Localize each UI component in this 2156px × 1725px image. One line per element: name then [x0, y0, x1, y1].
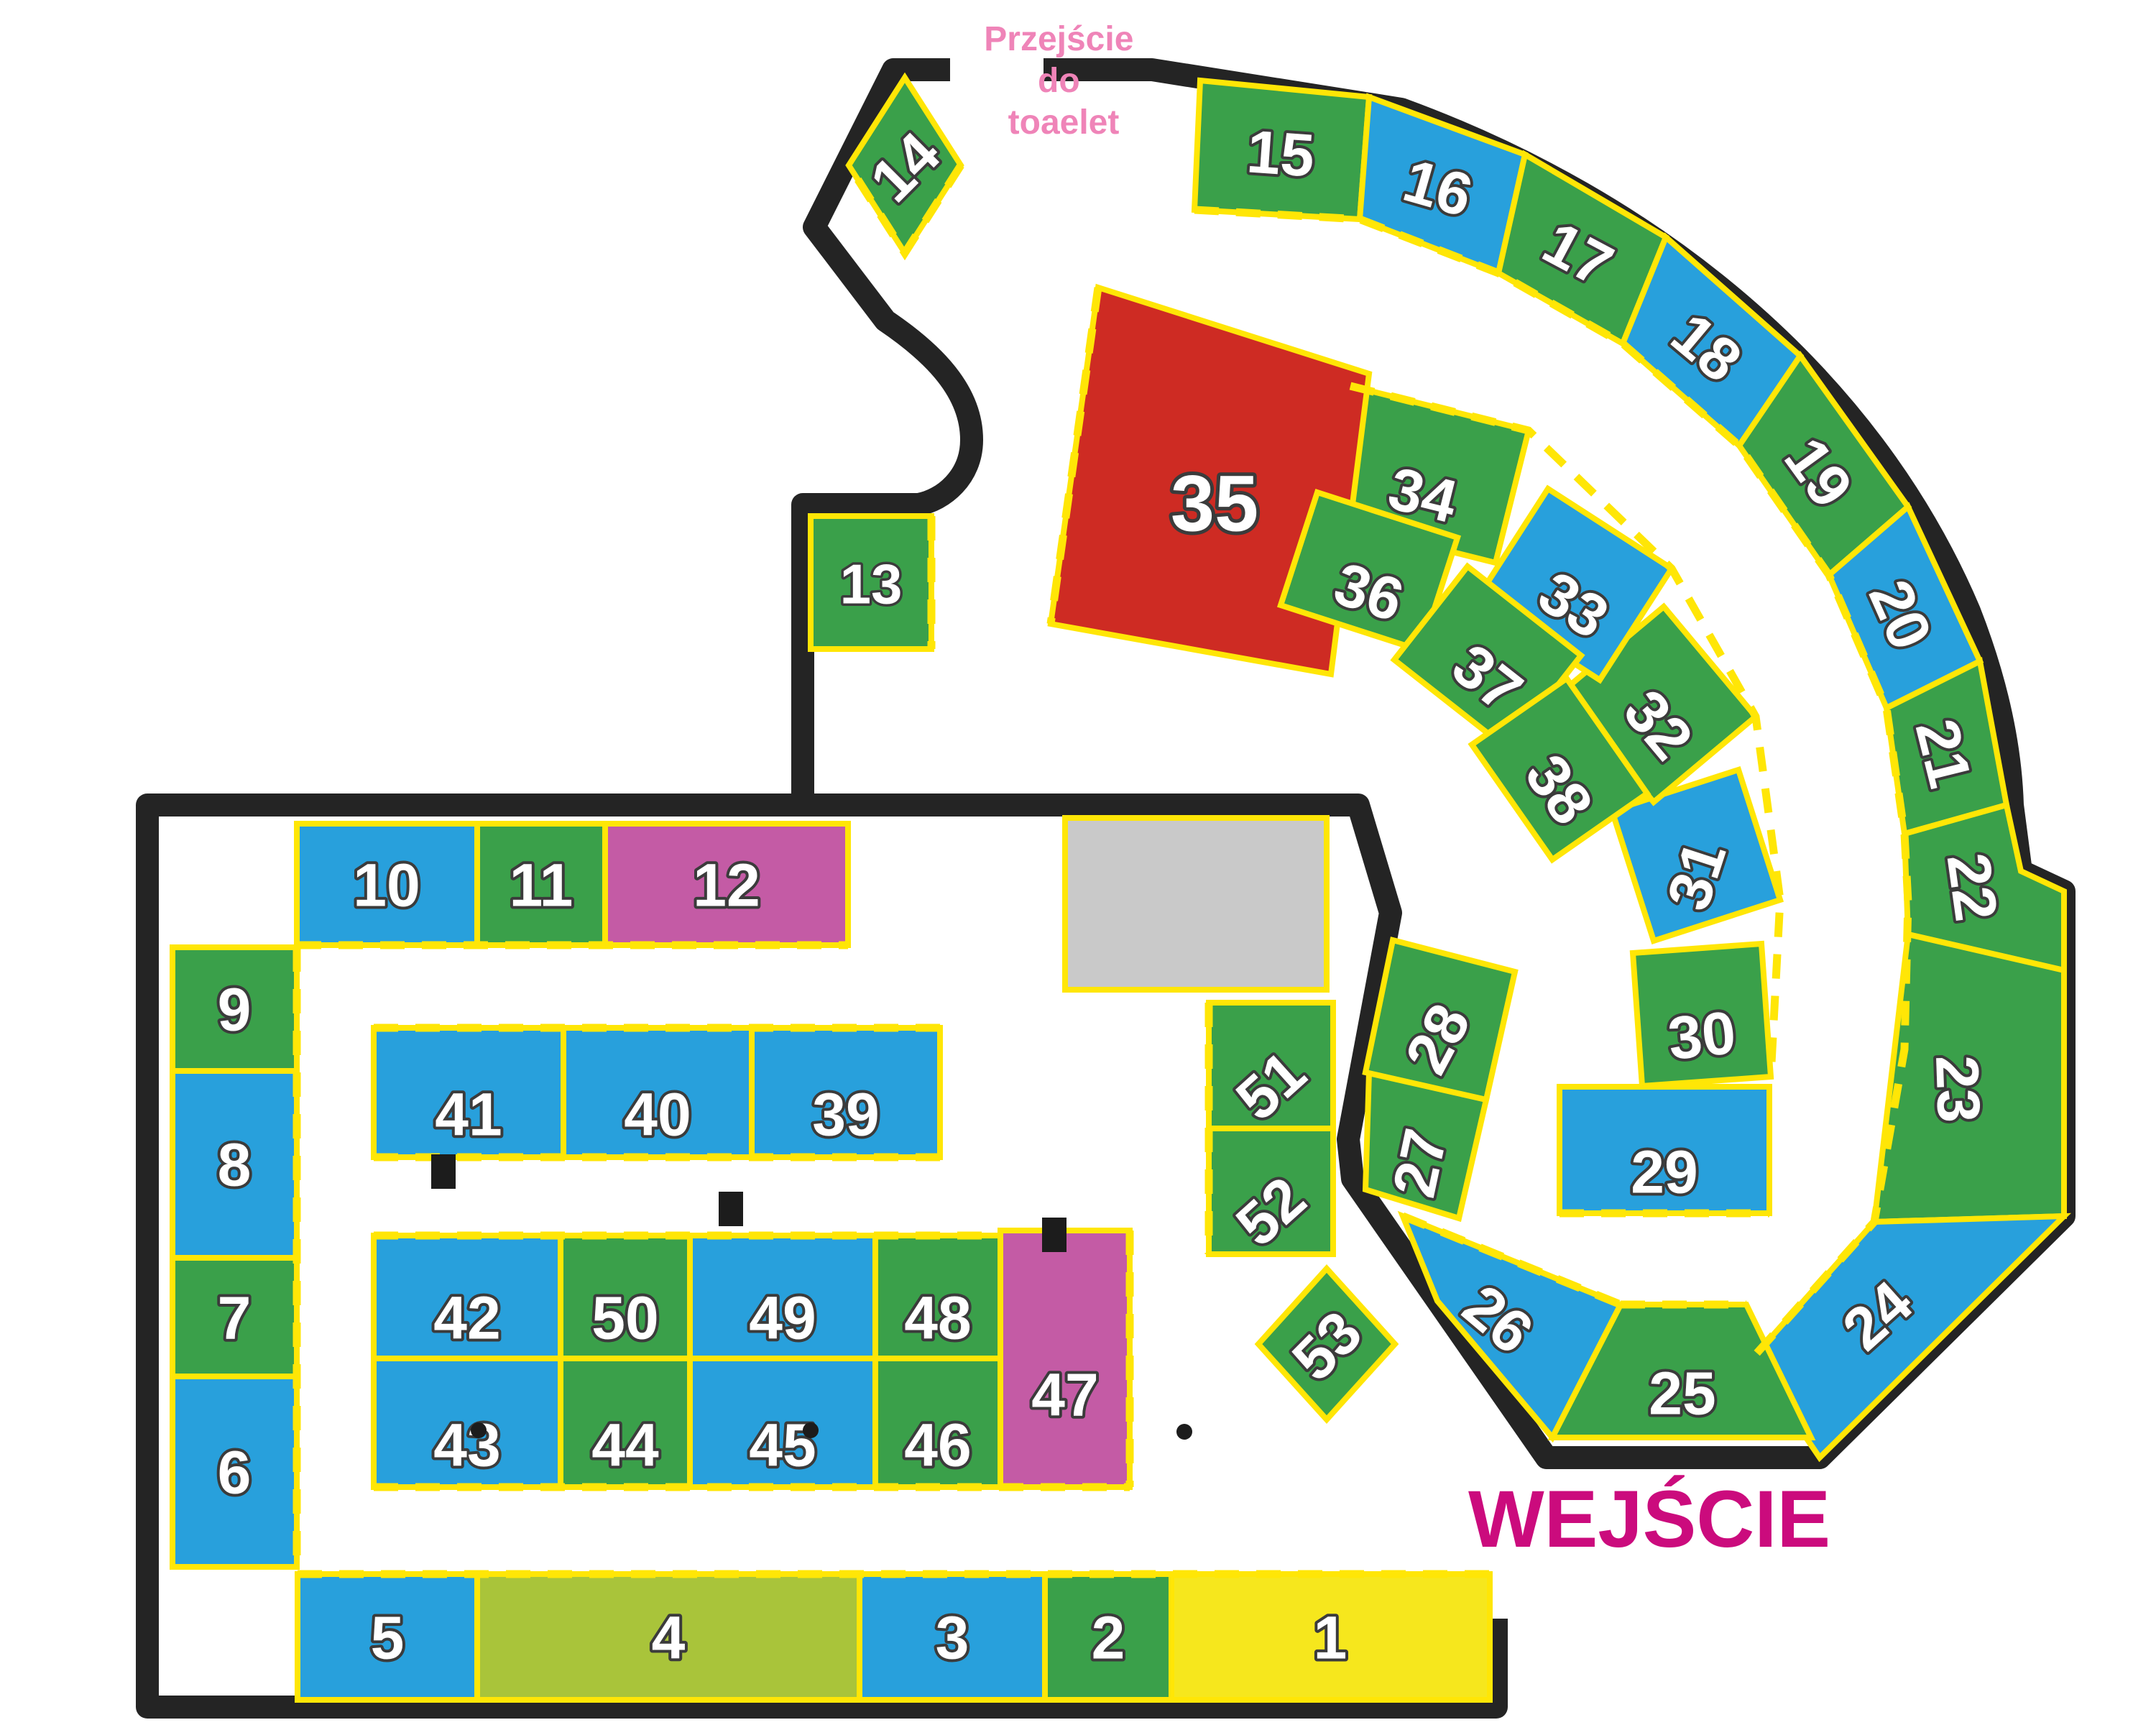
- booth-49[interactable]: 49: [690, 1236, 875, 1358]
- booth-28[interactable]: 28: [1365, 940, 1515, 1100]
- booth-4[interactable]: 4: [477, 1574, 860, 1700]
- booth-3-label: 3: [936, 1604, 969, 1671]
- booth-29-label: 29: [1631, 1138, 1697, 1205]
- booth-39[interactable]: 39: [752, 1028, 940, 1157]
- booth-48-label: 48: [904, 1284, 971, 1351]
- booth-9-label: 9: [218, 975, 252, 1043]
- booth-8[interactable]: 8: [172, 1071, 297, 1258]
- booth-40-label: 40: [624, 1080, 691, 1148]
- exhibition-floor-plan: 1234567891011121314151617181920212223242…: [0, 0, 2156, 1725]
- booth-7[interactable]: 7: [172, 1258, 297, 1376]
- booth-9[interactable]: 9: [172, 947, 297, 1071]
- booth-27-label: 27: [1380, 1123, 1460, 1203]
- booth-1[interactable]: 1: [1171, 1574, 1490, 1700]
- booth-44-label: 44: [591, 1411, 659, 1478]
- booth-46[interactable]: 46: [875, 1358, 1000, 1487]
- booth-50-label: 50: [591, 1284, 658, 1351]
- booth-41-label: 41: [435, 1080, 502, 1148]
- service-area: [1065, 818, 1327, 990]
- booth-35-label: 35: [1171, 460, 1258, 548]
- booth-6[interactable]: 6: [172, 1376, 297, 1567]
- booth-15-label: 15: [1245, 117, 1317, 189]
- booth-7-label: 7: [218, 1284, 252, 1351]
- booth-42[interactable]: 42: [374, 1236, 561, 1358]
- booth-44[interactable]: 44: [561, 1358, 690, 1487]
- booth-30[interactable]: 30: [1633, 944, 1771, 1086]
- booth-50[interactable]: 50: [561, 1236, 690, 1358]
- entrance-label: WEJŚCIE: [1468, 1474, 1830, 1564]
- booth-12-label: 12: [693, 851, 760, 919]
- booth-13[interactable]: 13: [811, 516, 931, 649]
- booth-41[interactable]: 41: [374, 1028, 563, 1157]
- column-dot-1: [471, 1422, 487, 1438]
- booth-43[interactable]: 43: [374, 1358, 561, 1487]
- booth-11[interactable]: 11: [477, 824, 605, 945]
- booth-16[interactable]: 16: [1360, 97, 1525, 273]
- booth-10[interactable]: 10: [297, 824, 477, 945]
- booth-5[interactable]: 5: [298, 1574, 477, 1700]
- booth-49-label: 49: [749, 1284, 816, 1351]
- booth-8-label: 8: [218, 1131, 252, 1198]
- booth-46-label: 46: [904, 1411, 971, 1478]
- column-dot-3: [1176, 1424, 1192, 1440]
- booth-22-label: 22: [1935, 849, 2011, 925]
- booth-45-label: 45: [749, 1411, 816, 1478]
- booth-2[interactable]: 2: [1045, 1574, 1171, 1700]
- column-dot-2: [803, 1422, 819, 1438]
- pillar-2: [719, 1192, 743, 1226]
- booth-6-label: 6: [218, 1438, 252, 1506]
- booth-48[interactable]: 48: [875, 1236, 1000, 1358]
- booth-52[interactable]: 52: [1209, 1128, 1333, 1259]
- booth-12[interactable]: 12: [605, 824, 848, 945]
- booth-53[interactable]: 53: [1258, 1269, 1395, 1420]
- booth-3[interactable]: 3: [860, 1574, 1045, 1700]
- booth-43-label: 43: [433, 1411, 500, 1478]
- booth-47-label: 47: [1031, 1361, 1098, 1428]
- booth-15[interactable]: 15: [1194, 80, 1369, 219]
- service-area-layer: [1065, 818, 1327, 990]
- floor-plan-page: 1234567891011121314151617181920212223242…: [0, 0, 2156, 1725]
- booth-47-area[interactable]: [1000, 1230, 1130, 1487]
- booth-30-label: 30: [1665, 998, 1739, 1072]
- booth-40[interactable]: 40: [563, 1028, 752, 1157]
- booth-11-label: 11: [510, 851, 573, 919]
- booth-29[interactable]: 29: [1560, 1087, 1769, 1213]
- booth-39-label: 39: [812, 1080, 879, 1148]
- booth-13-label: 13: [840, 552, 903, 615]
- booth-10-label: 10: [353, 851, 420, 919]
- pillar-3: [1042, 1218, 1067, 1252]
- booth-2-label: 2: [1092, 1604, 1125, 1671]
- booth-47[interactable]: 47: [1000, 1230, 1130, 1487]
- booth-1-label: 1: [1314, 1604, 1347, 1671]
- booth-23-label: 23: [1923, 1054, 1993, 1124]
- pillar-1: [431, 1154, 456, 1189]
- booth-5-label: 5: [371, 1604, 405, 1671]
- booth-25-label: 25: [1649, 1359, 1715, 1427]
- booth-4-label: 4: [652, 1604, 686, 1671]
- booth-45[interactable]: 45: [690, 1358, 875, 1487]
- booth-51[interactable]: 51: [1209, 1003, 1333, 1133]
- booth-42-label: 42: [433, 1284, 500, 1351]
